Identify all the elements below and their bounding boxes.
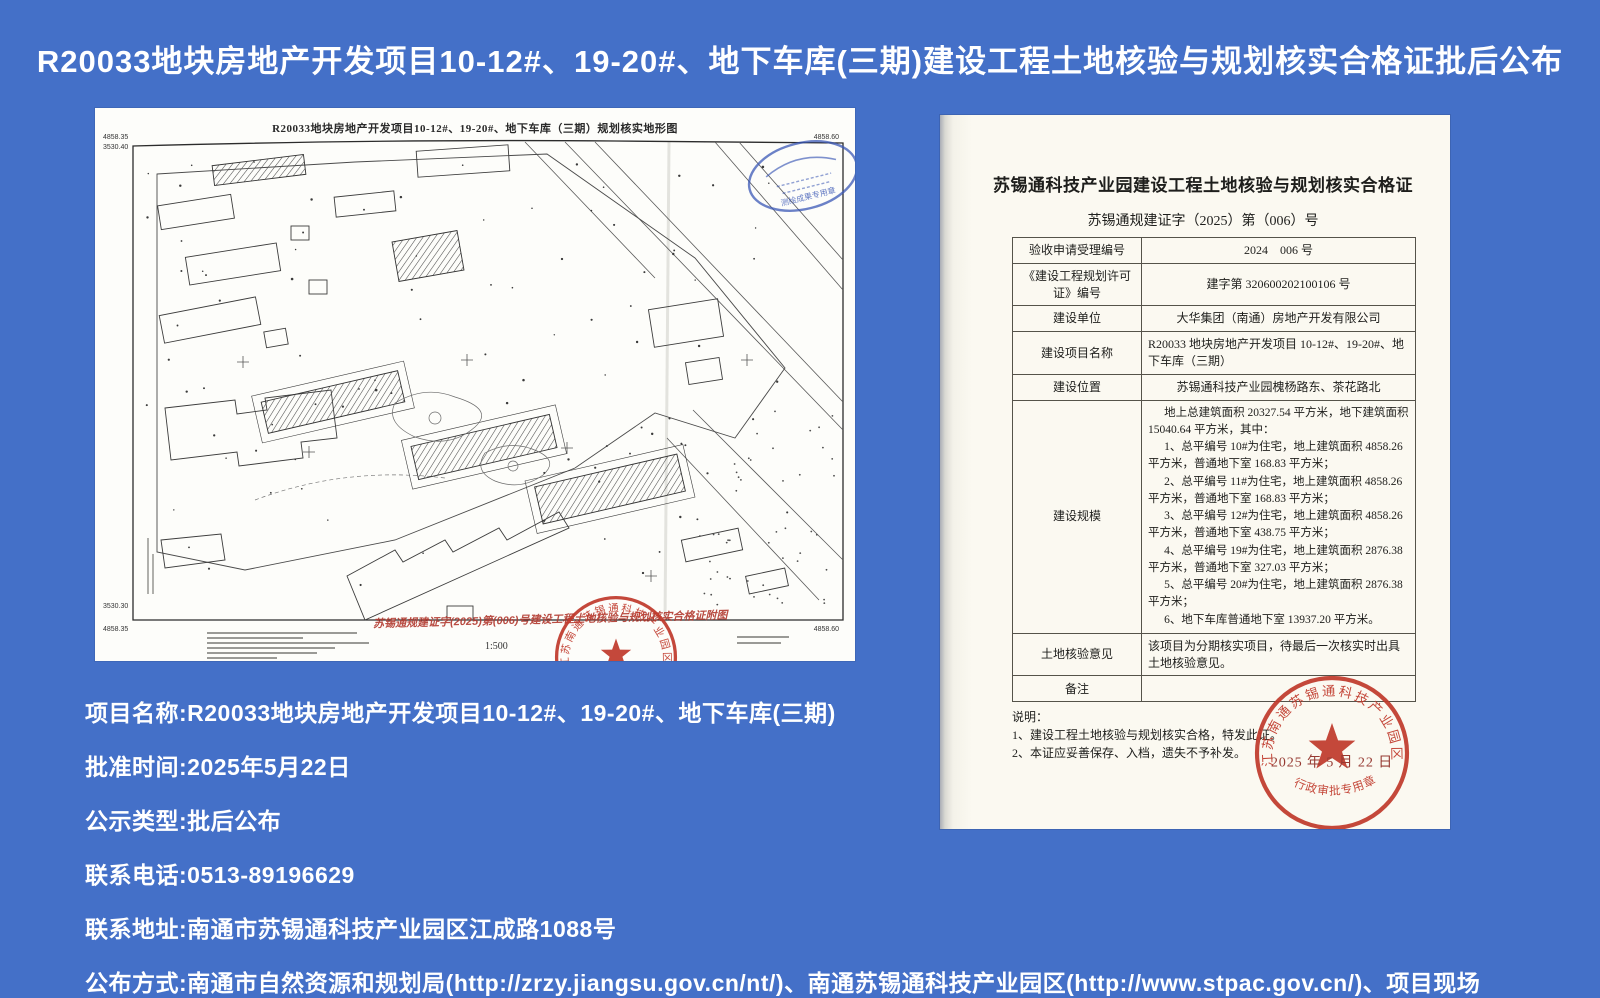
map-scale-label: 1:500 [485, 641, 508, 652]
info-line-address: 联系地址:南通市苏锡通科技产业园区江成路1088号 [85, 910, 1480, 944]
planning-map-document: R20033地块房地产开发项目10-12#、19-20#、地下车库（三期）规划核… [95, 108, 855, 661]
svg-text:3530.40: 3530.40 [103, 144, 128, 151]
scan-fold [665, 142, 669, 622]
map-notes-left [207, 632, 377, 661]
table-row: 验收申请受理编号 2024 006 号 [1013, 238, 1416, 264]
map-approval-seal: 江苏南通苏锡通科技产业园区管理委员会 行政审批专用章 [550, 591, 682, 661]
certificate-number: 苏锡通规建证字（2025）第（006）号 [974, 210, 1432, 230]
map-dots [146, 161, 788, 586]
announcement-info: 项目名称:R20033地块房地产开发项目10-12#、19-20#、地下车库(三… [85, 694, 1480, 998]
surveyor-seal: 测绘成果专用章 [742, 131, 855, 222]
certificate-title: 苏锡通科技产业园建设工程土地核验与规划核实合格证 [974, 171, 1432, 196]
info-line-notice-type: 公示类型:批后公布 [85, 802, 1480, 836]
map-buildings-outline [158, 145, 789, 620]
certificate-table: 验收申请受理编号 2024 006 号 《建设工程规划许可证》编号 建字第 32… [1012, 237, 1416, 702]
table-row: 建设单位 大华集团（南通）房地产开发有限公司 [1013, 306, 1416, 332]
svg-text:4858.60: 4858.60 [814, 626, 839, 633]
info-line-project-name: 项目名称:R20033地块房地产开发项目10-12#、19-20#、地下车库(三… [85, 694, 1480, 728]
info-line-phone: 联系电话:0513-89196629 [85, 856, 1480, 890]
info-line-publish-method: 公布方式:南通市自然资源和规划局(http://zrzy.jiangsu.gov… [85, 964, 1480, 998]
map-frame [133, 141, 843, 620]
svg-text:4858.60: 4858.60 [814, 134, 839, 141]
map-notes-right [737, 636, 797, 648]
svg-text:3530.30: 3530.30 [103, 603, 128, 610]
surveyor-seal-text: 测绘成果专用章 [780, 185, 837, 208]
svg-text:4858.35: 4858.35 [103, 134, 128, 141]
path-dashed [255, 475, 445, 500]
table-row: 建设项目名称 R20033 地块房地产开发项目 10-12#、19-20#、地下… [1013, 332, 1416, 375]
svg-text:4858.35: 4858.35 [103, 626, 128, 633]
info-line-approval-date: 批准时间:2025年5月22日 [85, 748, 1480, 782]
page-title: R20033地块房地产开发项目10-12#、19-20#、地下车库(三期)建设工… [0, 36, 1600, 81]
map-side-caption [147, 538, 217, 599]
map-buildings-hatched [212, 154, 685, 523]
table-row: 《建设工程规划许可证》编号 建字第 320600202100106 号 [1013, 263, 1416, 306]
table-row: 建设位置 苏锡通科技产业园槐杨路东、茶花路北 [1013, 374, 1416, 400]
table-row-scale: 建设规模 地上总建筑面积 20327.54 平方米，地下建筑面积 15040.6… [1013, 400, 1416, 633]
map-corner-dots [699, 411, 835, 606]
